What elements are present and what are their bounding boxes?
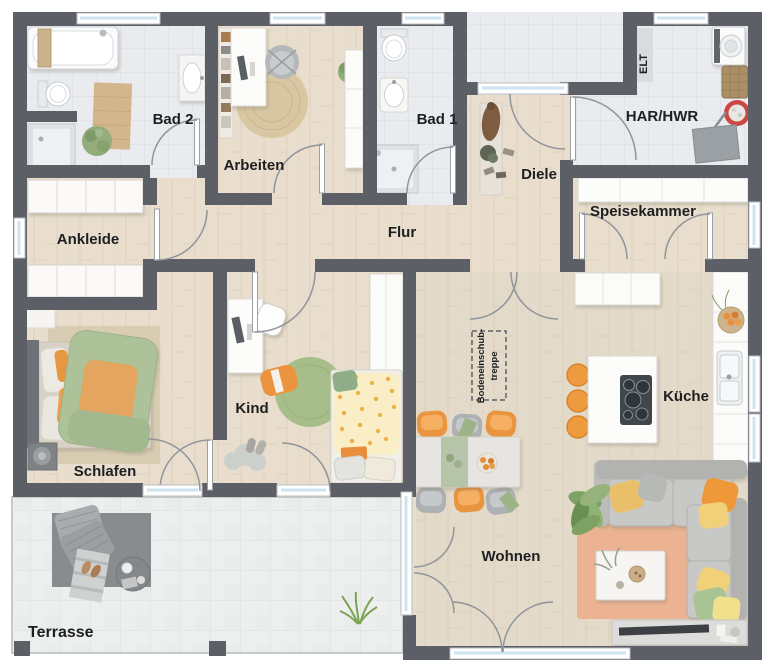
label-flur: Flur [388,224,416,241]
tv-sideboard [612,620,747,645]
attic-stairs-label-line2: treppe [489,351,500,380]
washing-machine [712,27,745,65]
label-schlafen: Schlafen [74,463,137,480]
laundry-box [692,125,739,163]
label-bad2: Bad 2 [153,111,194,128]
window-arbeiten [270,13,325,24]
toilet-bad1 [381,29,407,61]
terrace-post-left [14,641,30,656]
label-kind: Kind [235,400,268,417]
label-elt: ELT [638,54,650,74]
window-bad2 [77,13,160,24]
shower-bad1 [370,145,418,193]
laundry-basket [722,66,748,98]
desk [231,28,266,106]
bathtub-caddy [38,29,51,67]
plant-bad2 [82,126,112,156]
attic-stairs-label-line1: Bodeneinschub- [476,329,487,403]
dining-furniture [415,410,520,516]
window-ankleide [14,218,25,258]
shower-bad2 [28,124,75,172]
nightstand-top [26,307,55,328]
label-ankleide: Ankleide [57,231,120,248]
label-kueche: Küche [663,388,709,405]
sink-bad1 [380,78,408,112]
tall-cabinet [345,50,363,168]
speisekammer-furniture [578,178,748,202]
label-wohnen: Wohnen [482,548,541,565]
double-bed [27,328,160,453]
dining-table [415,437,520,487]
window-bad1 [402,13,444,24]
floor-plan-page: Bodeneinschub- treppe Bad 2 Arbeiten Bad… [0,0,775,670]
kitchen-counter [712,272,748,470]
window-har [654,13,708,24]
window-speisekammer [749,202,760,248]
terrace-tray [116,557,150,591]
kitchen-island [588,356,657,443]
bar-stools [567,364,589,438]
office-chair [265,45,299,79]
label-bad1: Bad 1 [417,111,458,128]
window-kueche [749,356,760,412]
bathtub-faucet [100,30,107,37]
label-speisekammer: Speisekammer [590,203,696,220]
label-har-hwr: HAR/HWR [626,108,699,125]
window-wohnen [749,414,760,462]
kids-bed [331,369,402,483]
terrace-post-right [209,641,226,656]
kitchen-sideboard [575,273,660,305]
label-diele: Diele [521,166,557,183]
pantry-shelf [578,178,748,202]
nightstand-bottom [28,443,57,470]
coffee-table [594,548,665,600]
sink-bad2 [179,55,205,101]
living-furniture [567,460,747,645]
label-arbeiten: Arbeiten [224,157,285,174]
bucket [724,100,750,126]
kueche-furniture [567,272,748,470]
label-terrasse: Terrasse [28,624,94,641]
floor-plan-canvas: Bodeneinschub- treppe Bad 2 Arbeiten Bad… [0,0,775,670]
toilet-bad2 [38,81,70,107]
